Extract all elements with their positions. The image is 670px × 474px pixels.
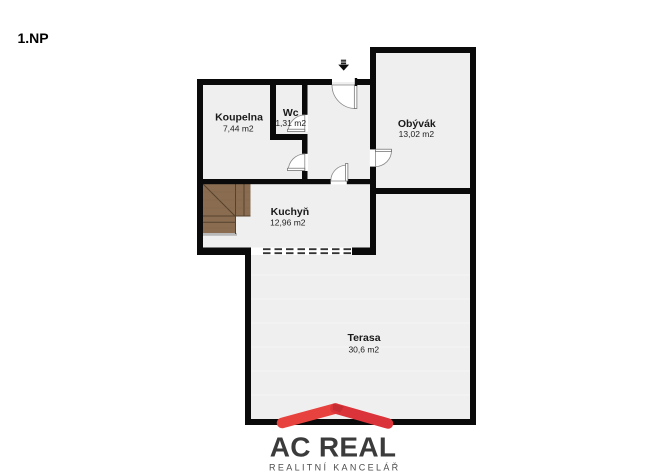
svg-text:Terasa: Terasa [347, 332, 380, 344]
svg-text:Koupelna: Koupelna [215, 112, 263, 124]
svg-text:REALITNÍ KANCELÁŘ: REALITNÍ KANCELÁŘ [269, 463, 400, 473]
svg-text:Kuchyň: Kuchyň [271, 206, 310, 218]
svg-text:13,02 m2: 13,02 m2 [399, 129, 435, 139]
svg-text:7,44 m2: 7,44 m2 [223, 124, 254, 134]
svg-text:12,96 m2: 12,96 m2 [270, 218, 306, 228]
svg-text:30,6 m2: 30,6 m2 [348, 344, 379, 354]
svg-text:1,31 m2: 1,31 m2 [275, 118, 306, 128]
svg-text:1.NP: 1.NP [18, 30, 49, 46]
svg-text:AC REAL: AC REAL [270, 432, 397, 463]
